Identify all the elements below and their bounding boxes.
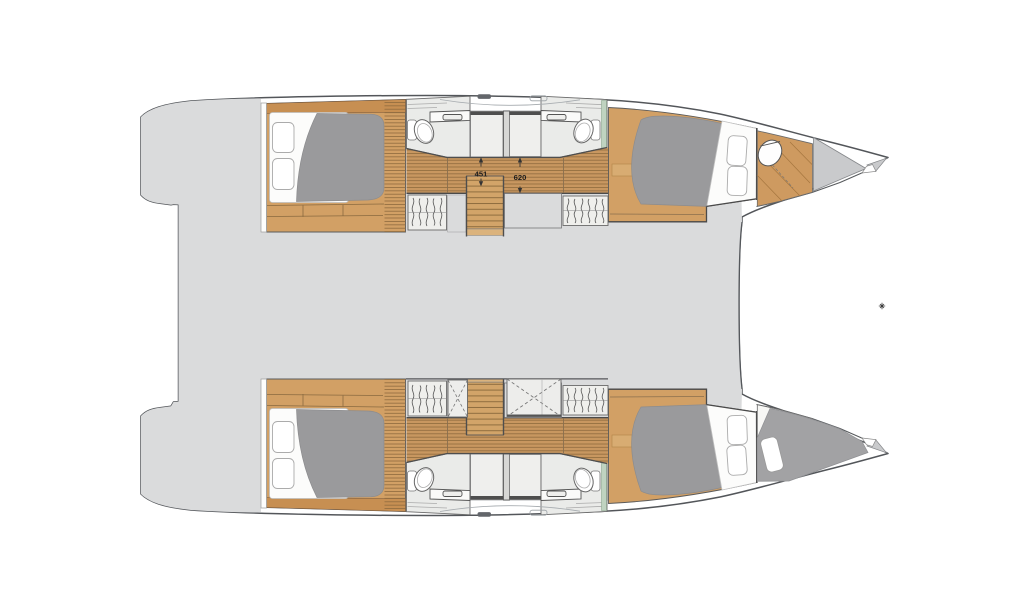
svg-text:620: 620 (514, 173, 527, 182)
svg-text:451: 451 (475, 170, 488, 179)
